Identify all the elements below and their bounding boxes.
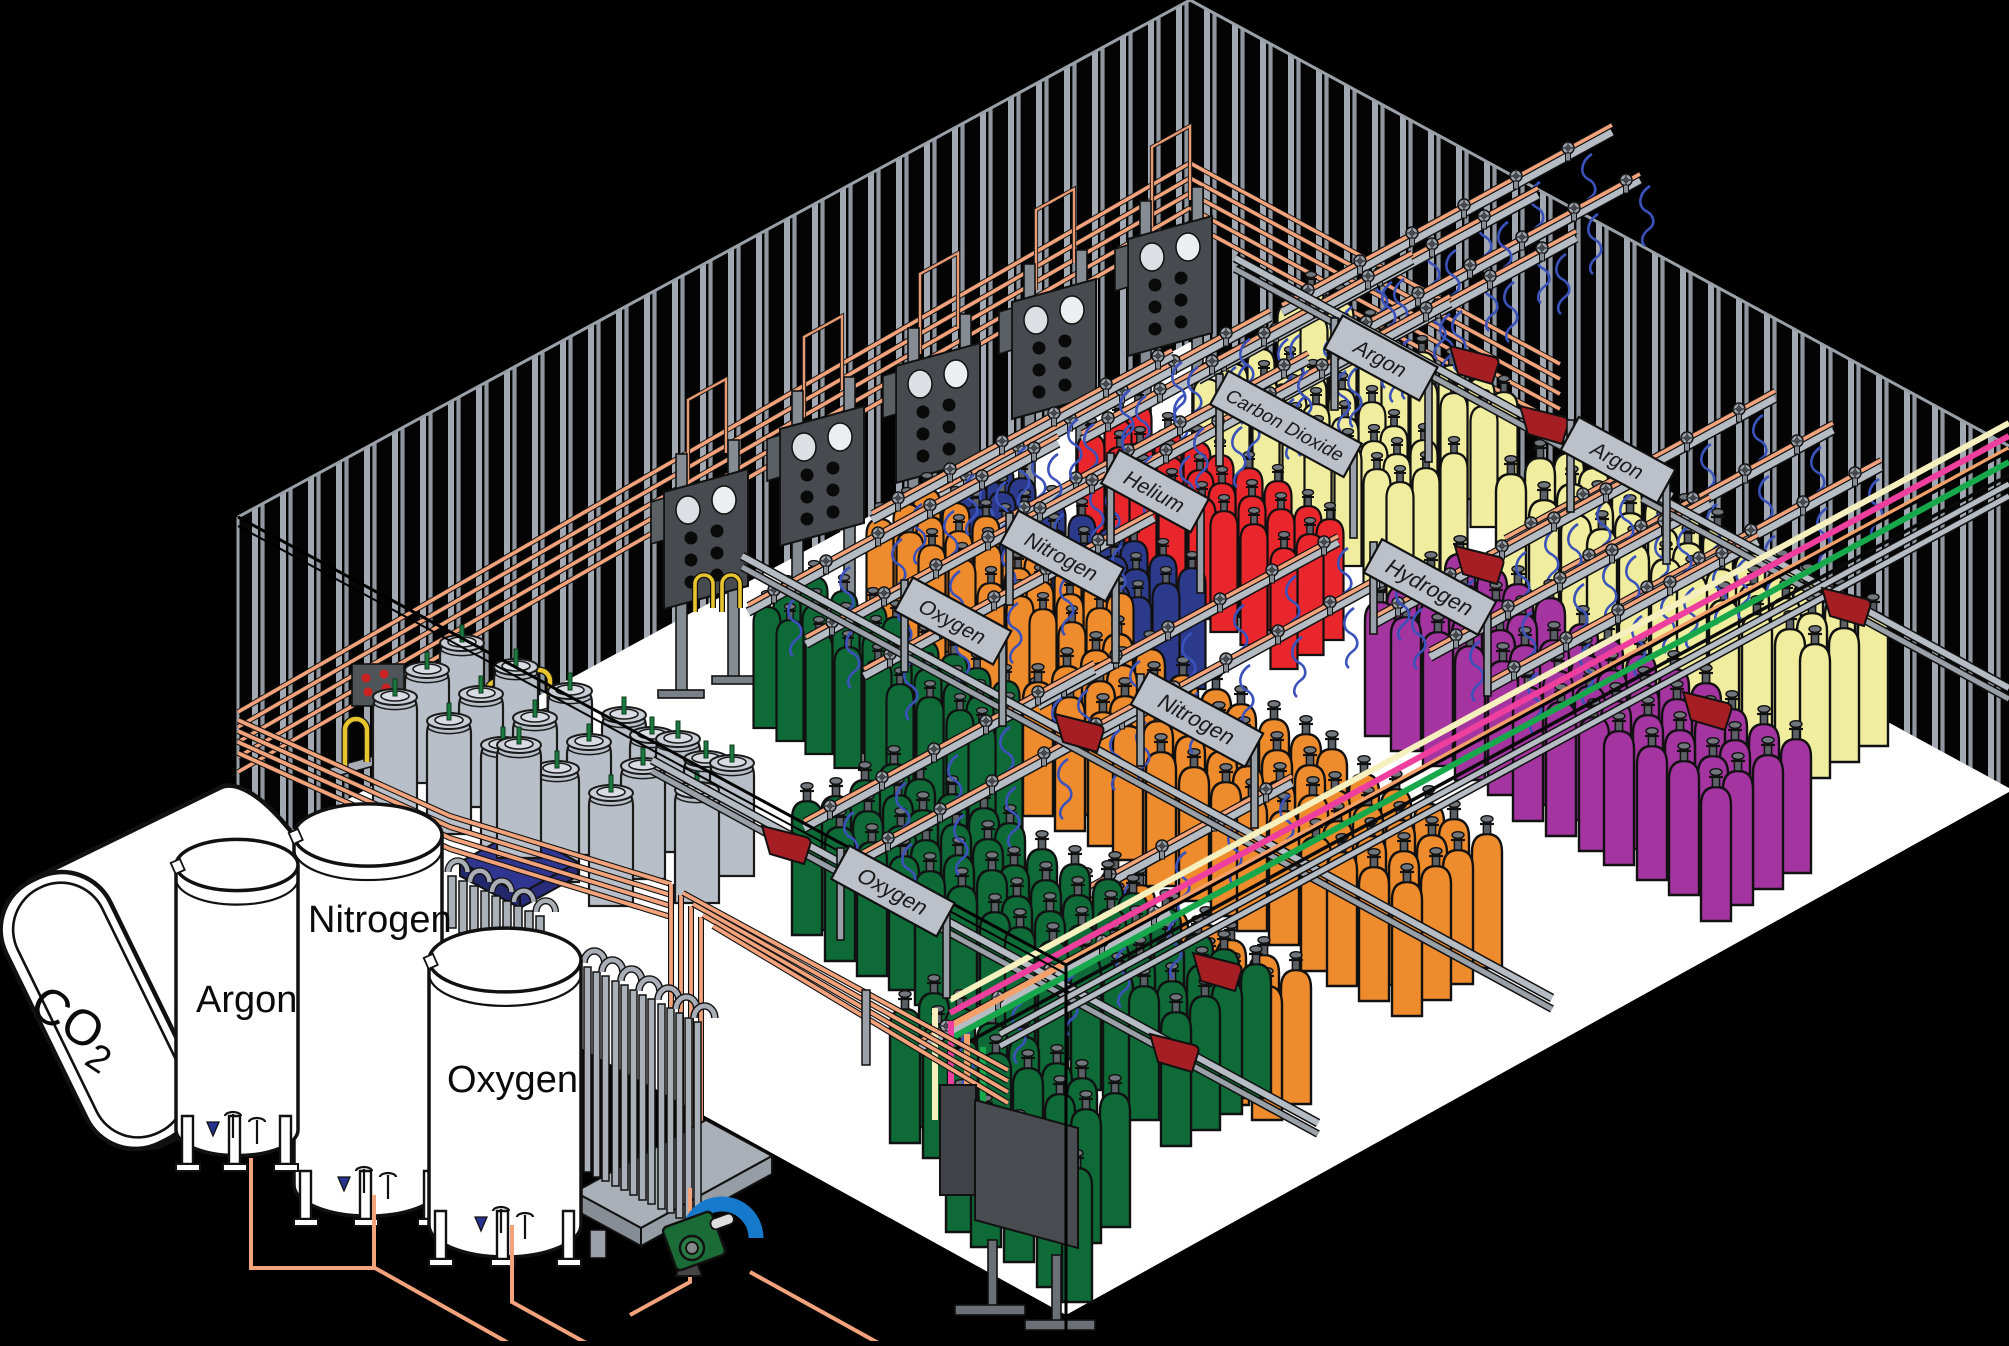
svg-text:Nitrogen: Nitrogen [308,899,452,941]
svg-text:Argon: Argon [196,979,297,1021]
svg-text:Oxygen: Oxygen [447,1059,578,1101]
